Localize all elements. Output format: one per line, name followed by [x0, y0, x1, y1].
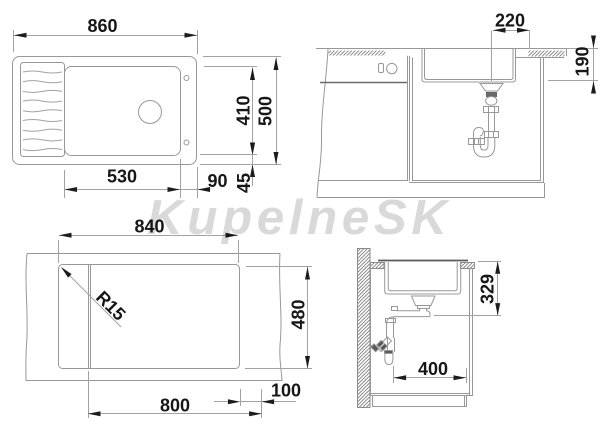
svg-text:800: 800	[160, 396, 190, 416]
svg-text:329: 329	[478, 274, 498, 304]
svg-text:400: 400	[418, 359, 448, 379]
svg-text:100: 100	[271, 381, 301, 401]
svg-text:190: 190	[573, 46, 593, 76]
svg-text:410: 410	[234, 95, 254, 125]
svg-text:530: 530	[107, 167, 137, 187]
svg-text:KupelneSK: KupelneSK	[147, 190, 452, 245]
svg-text:480: 480	[289, 299, 309, 329]
svg-text:860: 860	[87, 16, 117, 36]
svg-text:220: 220	[495, 11, 525, 31]
svg-text:500: 500	[256, 96, 276, 126]
svg-text:90: 90	[207, 171, 227, 191]
